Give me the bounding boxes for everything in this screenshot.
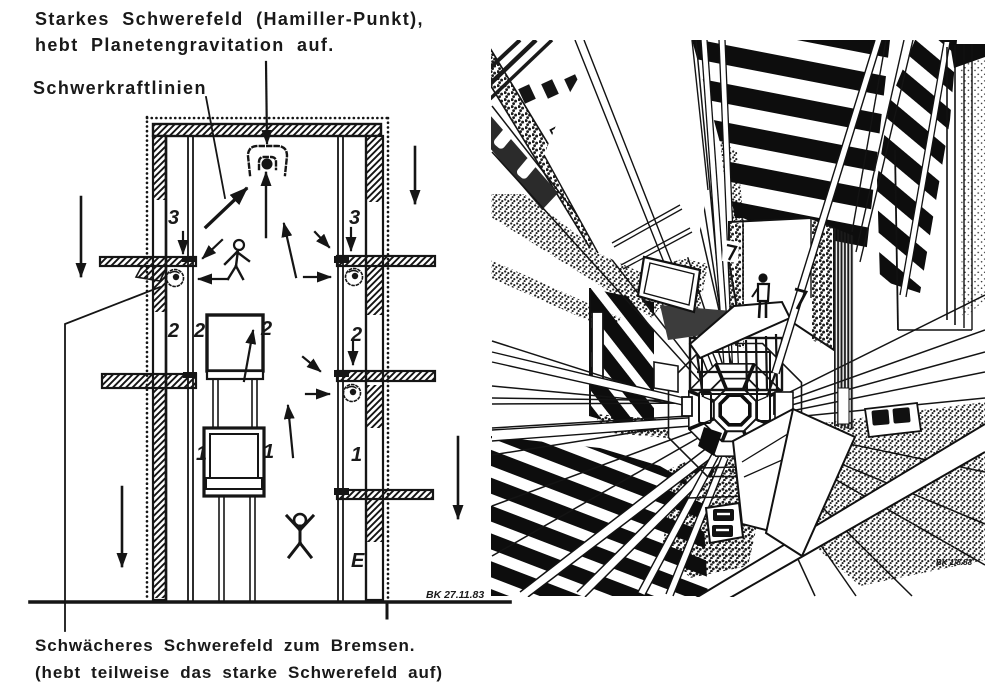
svg-text:2: 2: [260, 318, 272, 340]
svg-text:BK 27.11.83: BK 27.11.83: [426, 589, 484, 601]
svg-text:E: E: [351, 550, 365, 572]
svg-text:3: 3: [349, 207, 360, 229]
svg-text:hebt Planetengravitation auf.: hebt Planetengravitation auf.: [35, 35, 335, 55]
svg-text:BK 1/8.83: BK 1/8.83: [936, 558, 973, 567]
svg-text:2: 2: [167, 320, 179, 342]
svg-text:1: 1: [263, 441, 274, 463]
svg-text:1: 1: [196, 443, 207, 465]
svg-text:2: 2: [350, 324, 362, 346]
svg-text:2: 2: [193, 320, 205, 342]
svg-text:3: 3: [168, 207, 179, 229]
svg-text:(hebt teilweise das starke Sch: (hebt teilweise das starke Schwerefeld a…: [35, 663, 443, 682]
svg-text:Schwerkraftlinien: Schwerkraftlinien: [33, 78, 207, 98]
svg-text:Schwächeres Schwerefeld zum Br: Schwächeres Schwerefeld zum Bremsen.: [35, 636, 415, 655]
svg-text:Starkes Schwerefeld (Hamiller-: Starkes Schwerefeld (Hamiller-Punkt),: [35, 9, 424, 29]
svg-text:1: 1: [351, 444, 362, 466]
